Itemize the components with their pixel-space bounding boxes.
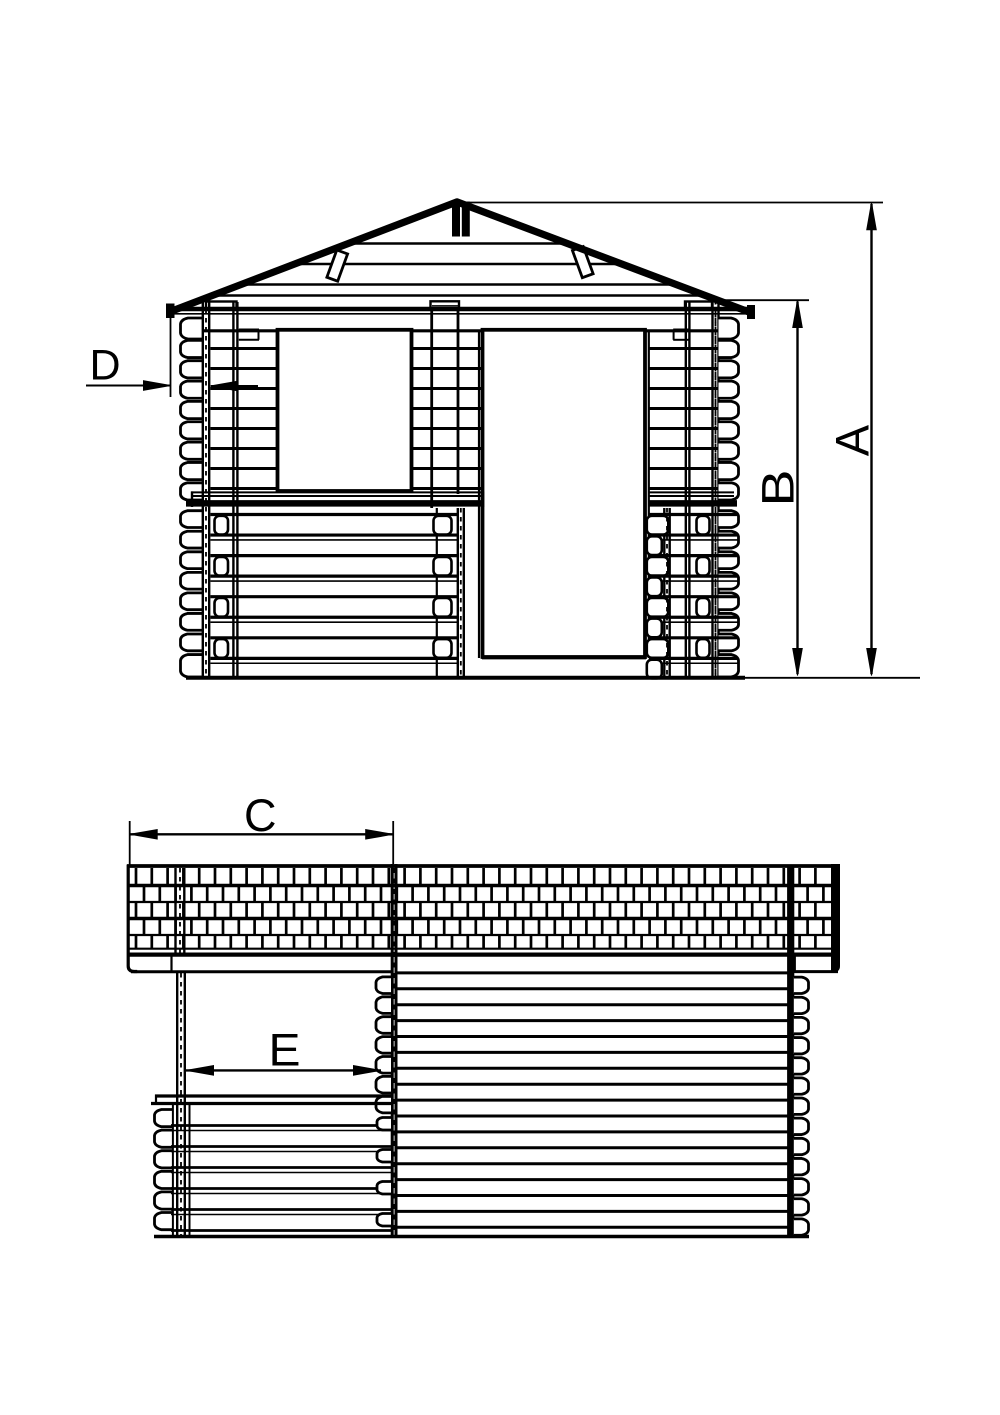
svg-text:E: E: [269, 1024, 301, 1075]
svg-text:B: B: [752, 470, 803, 507]
svg-text:D: D: [89, 341, 120, 389]
svg-text:C: C: [244, 790, 277, 841]
svg-text:A: A: [825, 424, 878, 456]
